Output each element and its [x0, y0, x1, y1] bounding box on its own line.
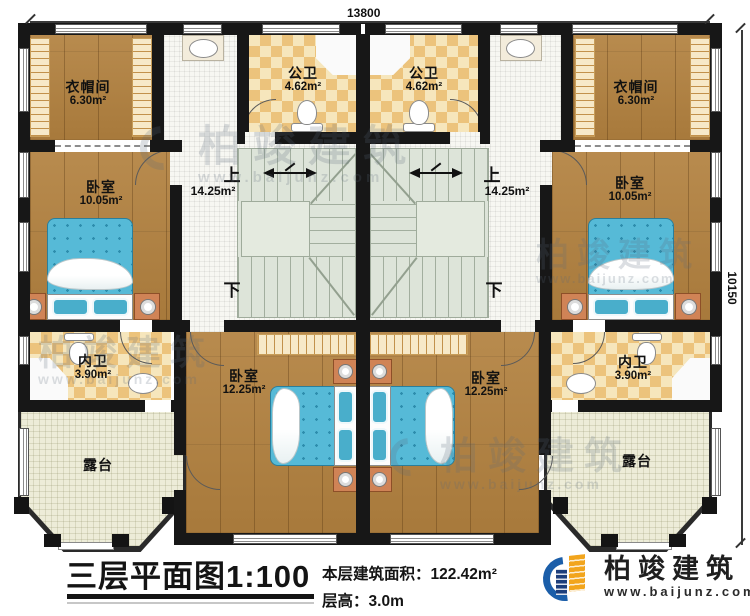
- floor-area-stat: 本层建筑面积：122.42m²: [322, 562, 497, 584]
- sink: [189, 39, 218, 58]
- dimension-top-value: 13800: [347, 6, 380, 20]
- logo-building-icon: [556, 569, 567, 595]
- window: [711, 48, 721, 112]
- watermark: 柏竣建筑 www.baijunz.com: [390, 438, 632, 493]
- stair-treads: [371, 201, 416, 257]
- wall: [690, 140, 722, 152]
- stair-treads: [310, 201, 355, 257]
- stair-treads: [371, 257, 488, 317]
- watermark-logo-icon: [131, 117, 193, 179]
- stair-treads: [238, 257, 355, 317]
- lamp-icon: [372, 472, 387, 487]
- window: [500, 24, 538, 34]
- terrace-post: [601, 534, 618, 547]
- window: [711, 336, 721, 365]
- window: [55, 24, 147, 34]
- nightstand: [675, 293, 701, 320]
- watermark-brand: 柏竣建筑: [536, 238, 700, 271]
- watermark: 柏竣建筑 www.baijunz.com: [38, 336, 214, 388]
- watermark-brand: 柏竣建筑: [198, 126, 418, 169]
- room-area: 10.05m²: [609, 191, 652, 204]
- wall: [605, 320, 722, 332]
- room-label-public-bath-right: 公卫 4.62m²: [406, 66, 442, 94]
- wall: [182, 320, 190, 332]
- wall: [356, 23, 370, 545]
- lamp-icon: [140, 299, 156, 315]
- nightstand: [134, 293, 160, 320]
- window: [19, 222, 29, 272]
- pillow: [92, 298, 129, 316]
- stair-arrow-line: [420, 172, 452, 174]
- watermark-url: www.baijunz.com: [440, 476, 632, 493]
- window: [262, 24, 340, 34]
- room-area: 4.62m²: [406, 81, 442, 94]
- window: [19, 428, 29, 496]
- watermark: 柏竣建筑 www.baijunz.com: [140, 126, 418, 187]
- company-url: www.baijunz.com: [604, 584, 750, 599]
- window: [572, 24, 678, 34]
- pillow: [593, 298, 630, 316]
- closet: [30, 38, 50, 137]
- room-label-cloakroom-right: 衣帽间 6.30m²: [614, 80, 659, 108]
- company-name: 柏竣建筑: [604, 555, 750, 583]
- room-name: 内卫: [615, 355, 651, 370]
- room-label-bedroom-right: 卧室 10.05m²: [609, 176, 652, 204]
- wall: [224, 320, 356, 332]
- stair-landing: [241, 201, 310, 257]
- company-logo-text: 柏竣建筑 www.baijunz.com: [604, 555, 750, 598]
- room-label-terrace-left: 露台: [83, 458, 113, 473]
- room-name: 卧室: [80, 180, 123, 195]
- pillow: [52, 298, 89, 316]
- watermark-brand: 柏竣建筑: [38, 336, 214, 371]
- wall: [478, 35, 490, 132]
- watermark-url: www.baijunz.com: [38, 371, 214, 388]
- room-label-ensuite-bath-right: 内卫 3.90m²: [615, 355, 651, 383]
- lamp-icon: [681, 299, 697, 315]
- bed-duvet: [272, 388, 300, 464]
- dimension-right-value: 10150: [725, 258, 739, 318]
- pillow: [337, 428, 354, 462]
- stair-down-label: 下: [224, 276, 241, 301]
- wall: [170, 185, 182, 332]
- title-underline: [67, 594, 314, 599]
- closet: [575, 38, 595, 137]
- room-area: 3.90m²: [615, 370, 651, 383]
- logo-building-icon: [569, 554, 585, 592]
- window: [233, 534, 337, 544]
- watermark: 柏竣建筑 www.baijunz.com: [536, 238, 700, 287]
- room-label-public-bath-left: 公卫 4.62m²: [285, 66, 321, 94]
- nightstand: [333, 359, 358, 384]
- room-label-bedroom2-left: 卧室 12.25m²: [223, 369, 266, 397]
- terrace-post: [44, 534, 61, 547]
- room-area: 6.30m²: [66, 95, 111, 108]
- window: [711, 222, 721, 272]
- wall: [561, 35, 573, 145]
- stair-landing: [416, 201, 485, 257]
- window: [19, 48, 29, 112]
- room-name: 卧室: [465, 371, 508, 386]
- nightstand: [333, 467, 358, 492]
- sink: [566, 373, 596, 394]
- toilet-tank: [632, 333, 662, 341]
- floor-height-value: 3.0m: [369, 593, 404, 610]
- page-title: 三层平面图1:100: [66, 551, 310, 596]
- room-area: 12.25m²: [465, 386, 508, 399]
- room-area: 12.25m²: [223, 384, 266, 397]
- window: [19, 152, 29, 198]
- floor-area-label: 本层建筑面积：: [322, 566, 431, 583]
- closet: [132, 38, 152, 137]
- toilet: [409, 100, 429, 125]
- sink: [506, 39, 535, 58]
- wall: [237, 35, 249, 132]
- wall: [540, 320, 573, 332]
- company-logo: 柏竣建筑 www.baijunz.com: [542, 549, 750, 605]
- room-label-bedroom-left: 卧室 10.05m²: [80, 180, 123, 208]
- room-area: 6.30m²: [614, 95, 659, 108]
- title-underline-shadow: [67, 602, 314, 604]
- room-name: 公卫: [406, 66, 442, 81]
- floor-height-label: 层高：: [322, 593, 369, 610]
- lamp-icon: [372, 364, 387, 379]
- watermark-url: www.baijunz.com: [536, 271, 700, 287]
- window: [711, 152, 721, 198]
- window: [183, 24, 222, 34]
- wall: [539, 400, 552, 412]
- dimension-line-right: [741, 30, 743, 545]
- open-partition-line: [55, 145, 150, 147]
- wall: [18, 400, 145, 412]
- terrace-left-railing: [58, 542, 114, 550]
- wall: [480, 132, 490, 144]
- room-name: 露台: [83, 458, 113, 473]
- watermark-brand: 柏竣建筑: [440, 438, 632, 476]
- room-name: 卧室: [223, 369, 266, 384]
- nightstand: [367, 467, 392, 492]
- wardrobe: [257, 334, 356, 355]
- toilet: [297, 100, 317, 125]
- wall: [535, 320, 540, 332]
- terrace-post: [112, 534, 129, 547]
- watermark-logo-icon: [382, 430, 436, 484]
- nightstand: [367, 359, 392, 384]
- floor-area-value: 122.42m²: [431, 566, 497, 583]
- wall: [152, 320, 182, 332]
- pillow: [337, 390, 354, 424]
- stair-arrow-icon: [452, 168, 463, 178]
- window: [19, 336, 29, 365]
- room-name: 公卫: [285, 66, 321, 81]
- floor-plan: 衣帽间 6.30m² 衣帽间 6.30m² 公卫 4.62m² 公卫 4.62m…: [0, 0, 750, 616]
- wall-seam: [361, 24, 365, 34]
- dimension-line-top: [30, 21, 710, 23]
- terrace-post: [14, 497, 29, 514]
- lamp-icon: [338, 472, 353, 487]
- wall: [578, 400, 722, 412]
- open-partition-line: [575, 145, 690, 147]
- lamp-icon: [338, 364, 353, 379]
- pillow: [371, 390, 388, 424]
- wall: [370, 320, 501, 332]
- room-area: 4.62m²: [285, 81, 321, 94]
- wall: [540, 140, 575, 152]
- pillow: [633, 298, 670, 316]
- room-label-bedroom2-right: 卧室 12.25m²: [465, 371, 508, 399]
- nightstand: [561, 293, 587, 320]
- terrace-post: [669, 534, 686, 547]
- stair-area-label: 14.25m²: [485, 184, 530, 198]
- pillow: [371, 428, 388, 462]
- room-name: 衣帽间: [614, 80, 659, 95]
- terrace-post: [553, 497, 568, 514]
- window: [390, 534, 494, 544]
- lamp-icon: [567, 299, 583, 315]
- closet: [690, 38, 710, 137]
- stair-down-label: 下: [486, 276, 503, 301]
- room-name: 衣帽间: [66, 80, 111, 95]
- window: [385, 24, 462, 34]
- wall: [171, 400, 186, 412]
- room-label-cloakroom-left: 衣帽间 6.30m²: [66, 80, 111, 108]
- wall: [18, 140, 55, 152]
- company-logo-icon: [542, 549, 596, 605]
- stair-up-label: 上: [484, 161, 501, 186]
- floor-height-stat: 层高：3.0m: [322, 589, 404, 611]
- watermark-url: www.baijunz.com: [198, 169, 418, 187]
- terrace-post: [702, 497, 717, 514]
- room-area: 10.05m²: [80, 195, 123, 208]
- wardrobe: [369, 334, 468, 355]
- window: [711, 428, 721, 496]
- room-name: 卧室: [609, 176, 652, 191]
- wall: [18, 320, 120, 332]
